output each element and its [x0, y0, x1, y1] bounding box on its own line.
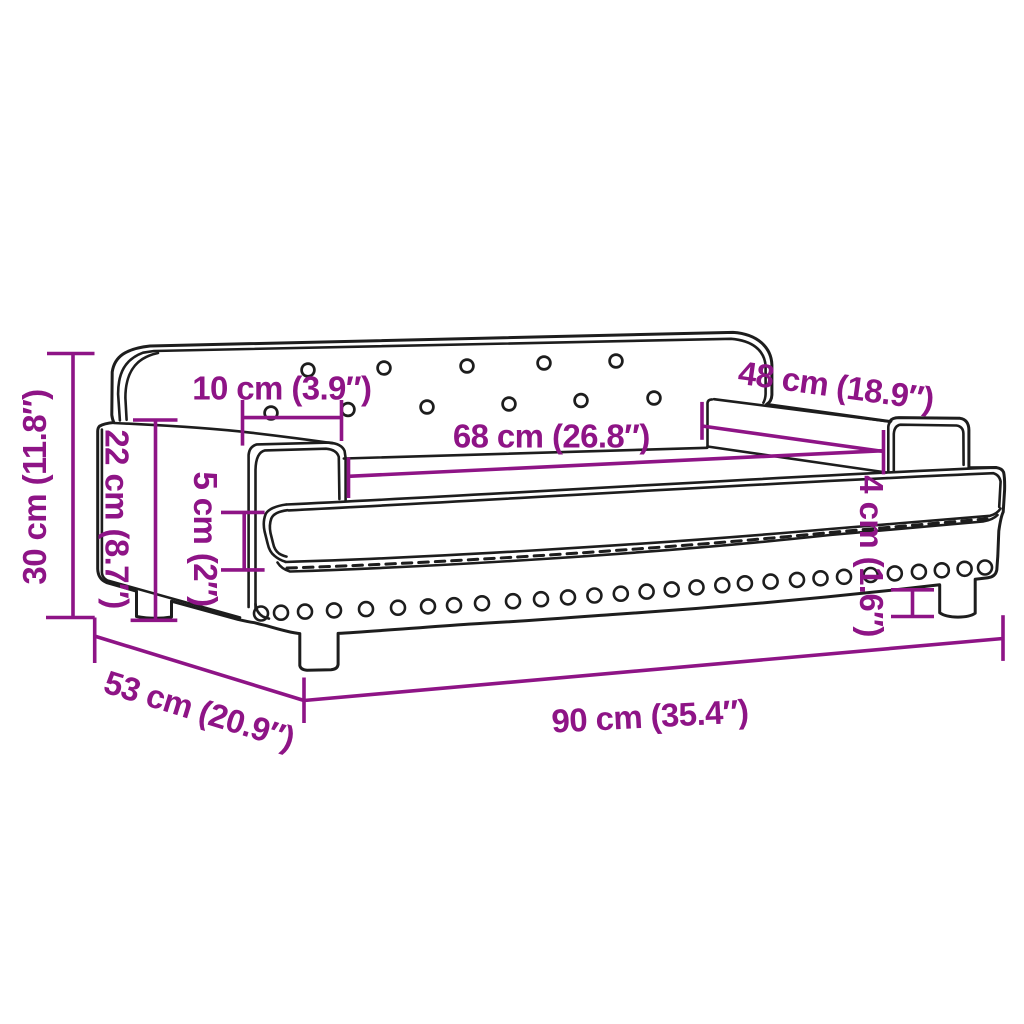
svg-text:22 cm (8.7″): 22 cm (8.7″): [99, 429, 136, 608]
svg-text:30 cm (11.8″): 30 cm (11.8″): [16, 389, 53, 584]
svg-text:68 cm (26.8″): 68 cm (26.8″): [453, 418, 650, 455]
svg-text:10 cm (3.9″): 10 cm (3.9″): [192, 370, 371, 407]
svg-text:5 cm (2″): 5 cm (2″): [187, 471, 224, 606]
svg-text:4 cm (1.6″): 4 cm (1.6″): [853, 475, 890, 636]
